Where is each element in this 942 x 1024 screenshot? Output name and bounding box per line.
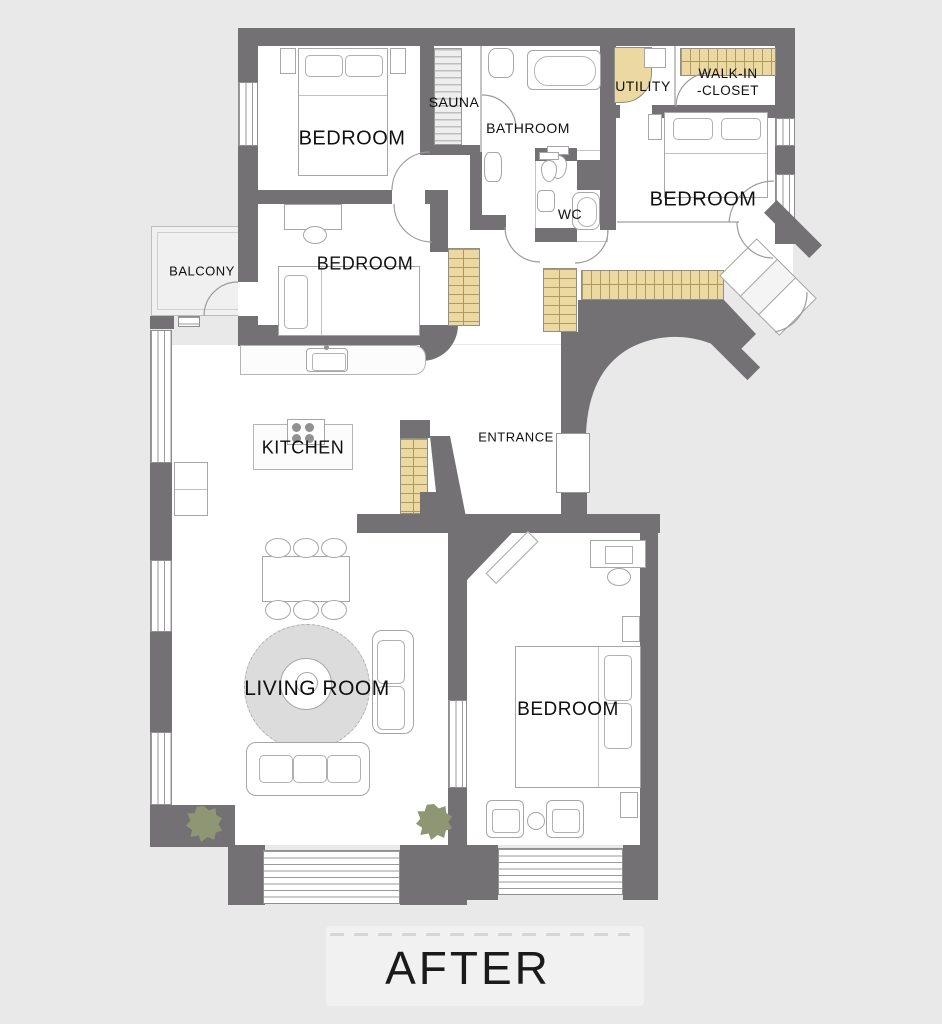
desk-chair [303, 226, 327, 244]
faucet [324, 345, 329, 350]
partition-line [617, 221, 739, 223]
window [448, 700, 467, 788]
window [775, 118, 795, 146]
wall [623, 845, 658, 900]
sofa-three-seat [246, 742, 370, 796]
wardrobe-line [413, 438, 414, 514]
desk-chair [607, 568, 631, 586]
wall [448, 533, 467, 700]
wall [258, 190, 392, 204]
dining-chair [265, 538, 291, 558]
curved-wall [561, 300, 756, 433]
wardrobe-line [680, 61, 776, 62]
sink [488, 48, 514, 78]
room-label-utility: UTILITY [615, 78, 671, 94]
wardrobe [448, 248, 480, 326]
toilet-tank [539, 152, 559, 160]
room-label-bedroom-top-left: BEDROOM [299, 128, 406, 151]
window [150, 330, 172, 463]
partition-line [480, 46, 482, 152]
bay-window [263, 850, 400, 904]
wardrobe-line [463, 248, 464, 326]
nightstand [390, 48, 406, 74]
hall-wardrobe-horizontal [581, 270, 724, 300]
wall [561, 332, 585, 433]
room-label-bedroom-middle: BEDROOM [317, 254, 414, 275]
door-arc [775, 292, 807, 332]
room-label-walk-in-closet: WALK-IN -CLOSET [697, 65, 759, 99]
front-door [556, 433, 590, 493]
room-label-bedroom-bottom-right: BEDROOM [517, 699, 619, 721]
nightstand [648, 114, 662, 140]
nightstand [622, 616, 640, 642]
nightstand [620, 792, 638, 818]
wall [238, 46, 258, 82]
kitchen-sink [306, 348, 348, 372]
room-label-bathroom: BATHROOM [486, 120, 570, 136]
fridge [174, 462, 208, 516]
sink [484, 152, 502, 182]
room-label-balcony: BALCONY [169, 264, 235, 279]
room-label-kitchen: KITCHEN [262, 438, 345, 459]
dining-chair [265, 600, 291, 620]
utility-sink [644, 48, 666, 68]
wardrobe-line [559, 268, 560, 332]
bay-window [498, 848, 623, 895]
room-label-entrance: ENTRANCE [478, 430, 554, 445]
sink [537, 190, 555, 212]
burner [292, 423, 301, 432]
side-table [527, 812, 545, 830]
caption-after: AFTER [385, 941, 551, 995]
wall [561, 493, 587, 515]
window [178, 316, 200, 327]
room-label-wc: WC [558, 206, 582, 222]
window [775, 174, 795, 222]
dining-chair [293, 600, 319, 620]
room-label-living-room: LIVING ROOM [244, 677, 390, 701]
wall [400, 420, 430, 438]
wall [600, 112, 616, 230]
wall [228, 845, 265, 905]
single-bed [278, 266, 420, 336]
walk-in-closet-line-2: -CLOSET [697, 82, 759, 99]
wall [357, 514, 660, 533]
wall [150, 316, 174, 329]
burner [305, 423, 314, 432]
wall [238, 146, 258, 282]
walk-in-closet-line-1: WALK-IN [697, 65, 759, 82]
room-label-bedroom-right: BEDROOM [650, 189, 757, 212]
bathtub [527, 50, 601, 90]
dining-table [262, 556, 350, 602]
armchair [546, 800, 584, 838]
window [150, 560, 172, 632]
nightstand [280, 48, 296, 74]
double-bed [298, 48, 388, 176]
wardrobe-line [581, 284, 724, 285]
wall [400, 845, 467, 905]
balcony-door-gap [238, 282, 258, 316]
wall [150, 463, 172, 560]
window [238, 82, 258, 146]
dining-chair [321, 600, 347, 620]
wall [775, 222, 795, 244]
faint-dashed-line [330, 933, 630, 936]
wall [467, 845, 498, 900]
wall [238, 28, 795, 46]
wall [775, 146, 795, 174]
kitchen-wardrobe [400, 438, 428, 514]
dining-chair [321, 538, 347, 558]
room-label-sauna: SAUNA [429, 94, 480, 110]
hall-wardrobe-vertical [543, 268, 577, 332]
armchair [486, 800, 524, 838]
wall [150, 632, 172, 732]
wall [470, 215, 506, 230]
partition-line [674, 46, 676, 105]
wall [640, 533, 658, 845]
dining-chair [293, 538, 319, 558]
window [150, 732, 172, 805]
desk [590, 540, 646, 568]
double-bed [664, 112, 768, 198]
wall [430, 190, 448, 252]
wall [535, 228, 577, 242]
floor-plan: BEDROOM SAUNA BATHROOM UTILITY WALK-IN -… [0, 0, 942, 1024]
